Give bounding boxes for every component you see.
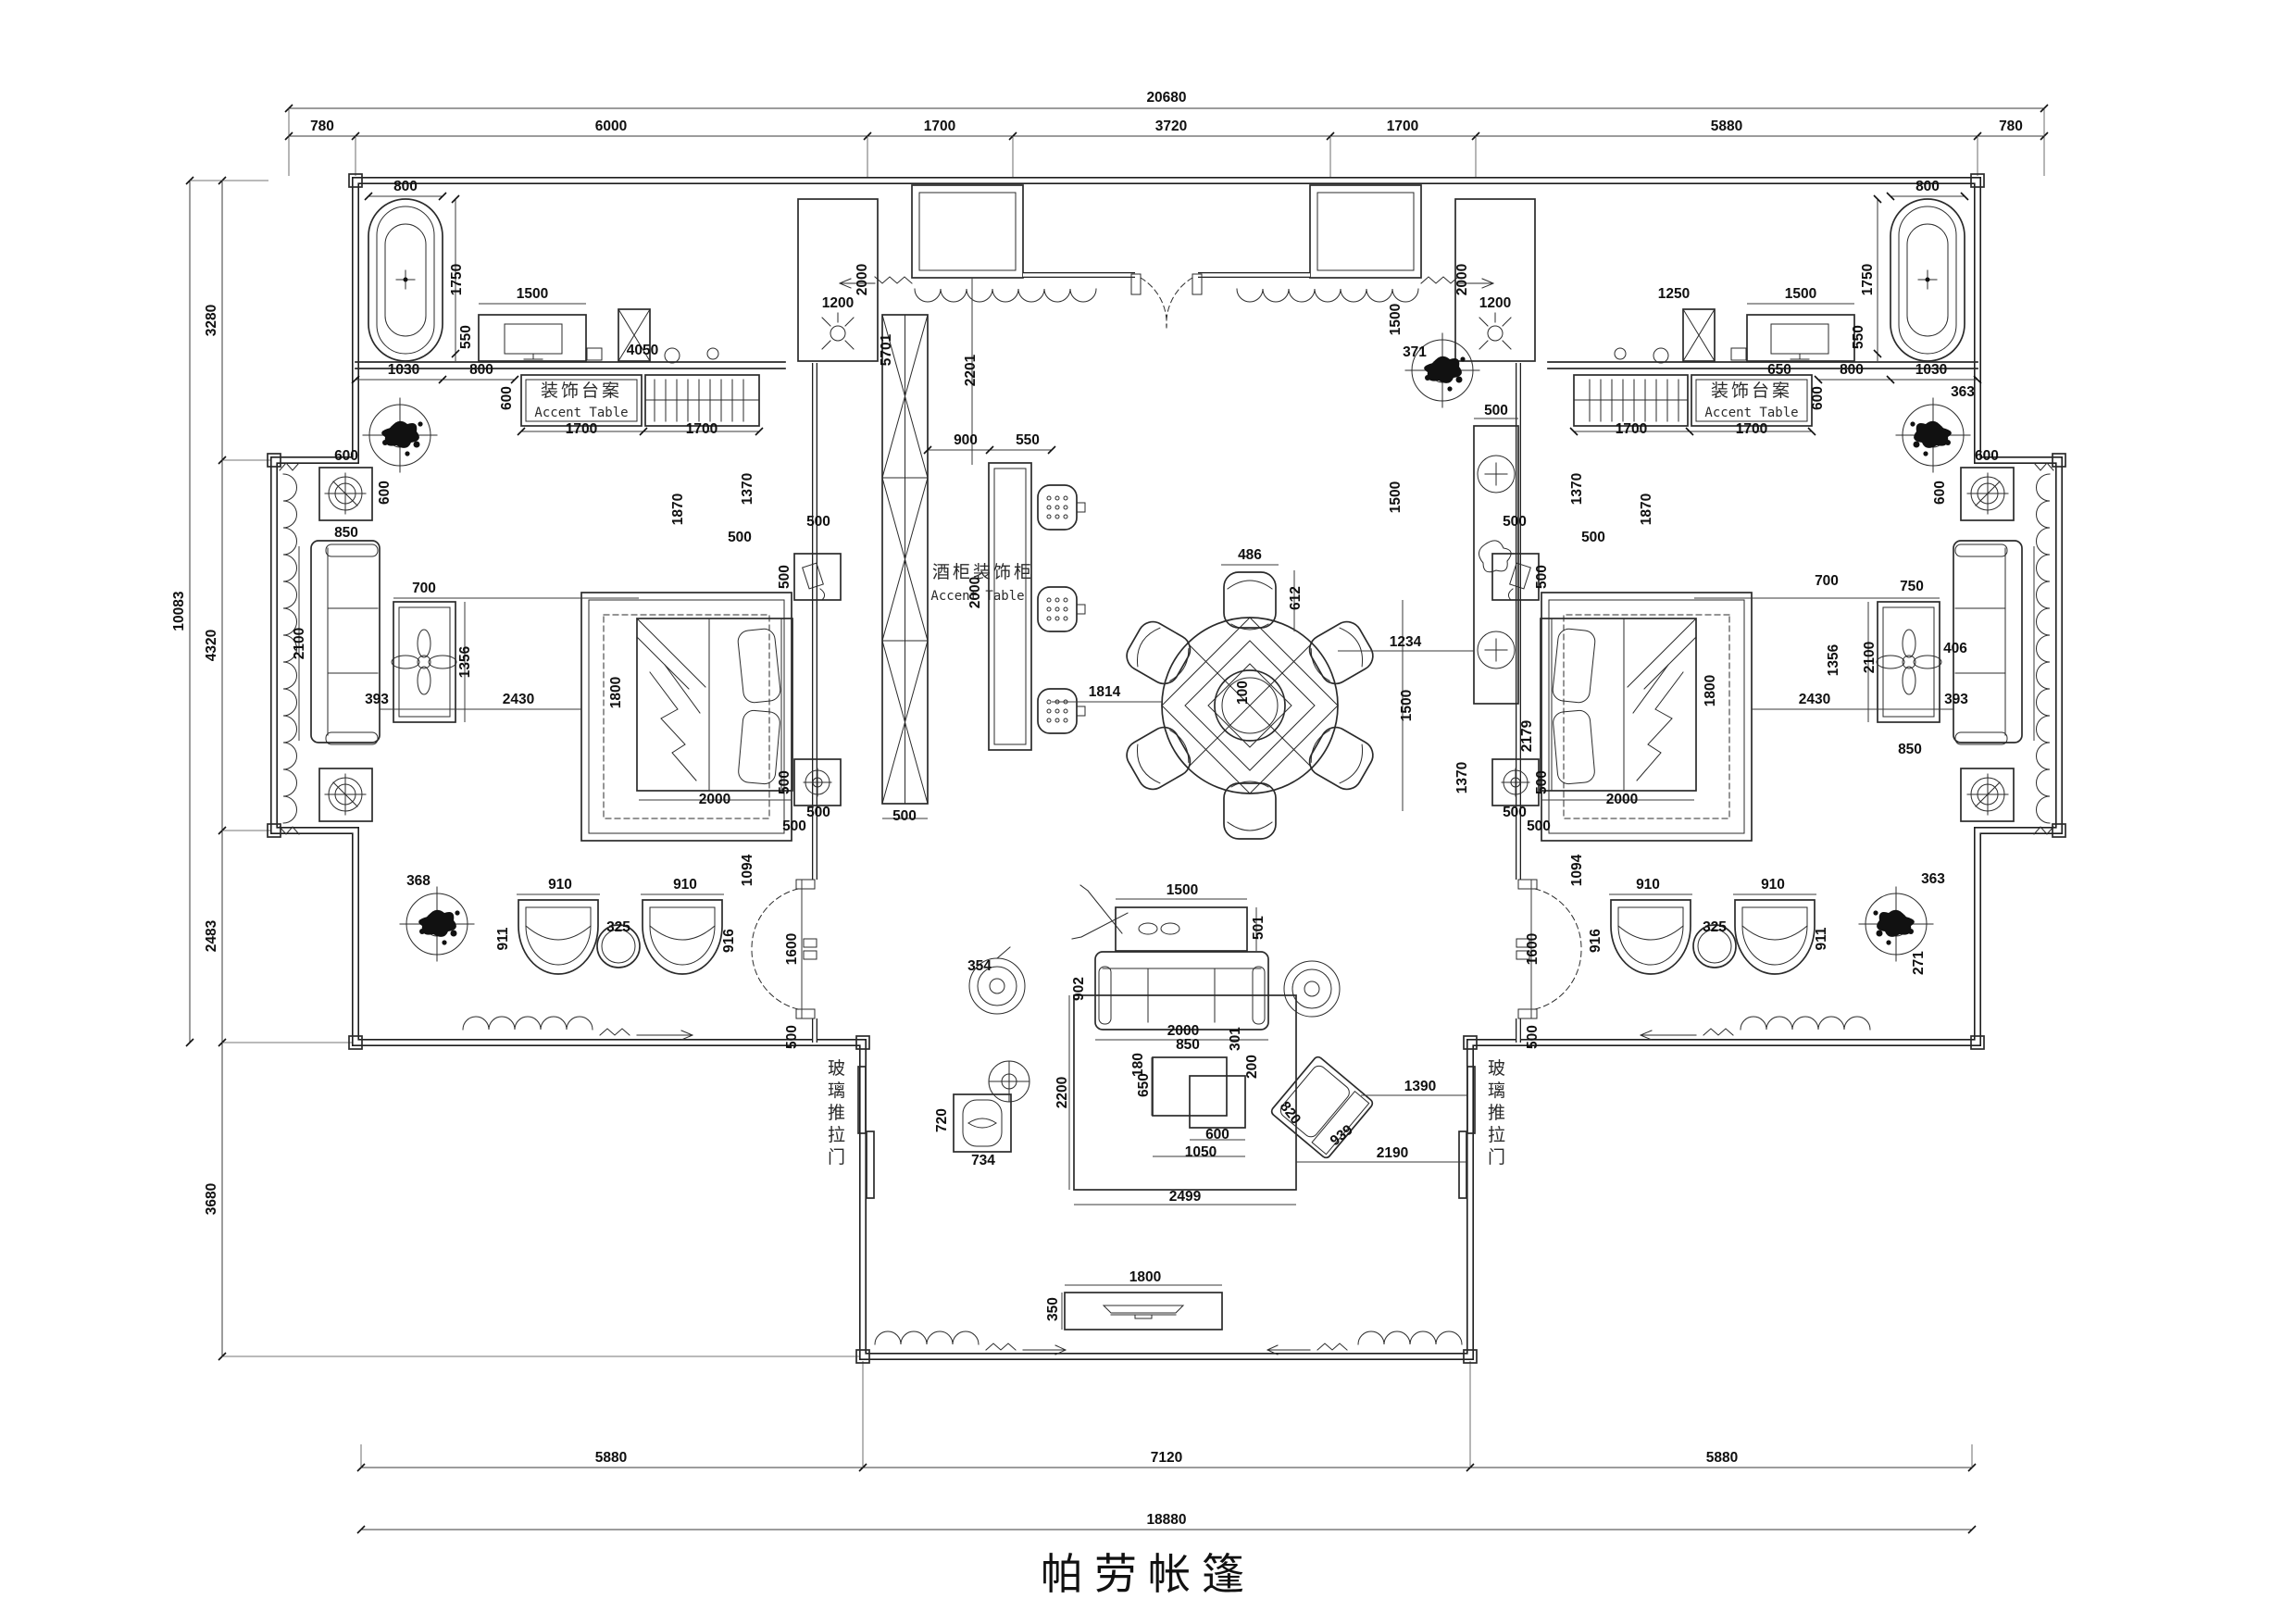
dim-label: 5880 bbox=[1706, 1450, 1738, 1466]
dim-label: 700 bbox=[412, 581, 436, 596]
dim-label: 500 bbox=[777, 565, 792, 589]
dim-label: 玻璃推拉门 bbox=[828, 1058, 848, 1168]
dim-label: 325 bbox=[606, 919, 630, 935]
dim-label: 2000 bbox=[699, 792, 730, 807]
dim-label: 200 bbox=[1244, 1055, 1260, 1079]
dim-label: 612 bbox=[1288, 586, 1304, 610]
dim-label: 910 bbox=[1761, 877, 1785, 893]
dim-label: 600 bbox=[1932, 481, 1948, 505]
dim-label: 3720 bbox=[1155, 119, 1187, 134]
dim-label: 2000 bbox=[967, 577, 983, 608]
dim-label: 2000 bbox=[1606, 792, 1638, 807]
dim-label: 368 bbox=[406, 873, 430, 889]
dim-label: 720 bbox=[934, 1108, 950, 1132]
dim-label: 325 bbox=[1703, 919, 1727, 935]
dim-label: 700 bbox=[1815, 573, 1839, 589]
dim-label: 780 bbox=[310, 119, 334, 134]
dim-label: 5880 bbox=[595, 1450, 627, 1466]
dim-label: 1500 bbox=[1388, 304, 1404, 335]
dim-label: 1600 bbox=[784, 933, 800, 965]
dim-label: 850 bbox=[1176, 1037, 1200, 1053]
dim-label: 7120 bbox=[1151, 1450, 1182, 1466]
dim-label: 500 bbox=[1534, 770, 1550, 794]
dim-label: 363 bbox=[1951, 384, 1975, 400]
dim-label: 18880 bbox=[1146, 1512, 1186, 1528]
dim-label: 2100 bbox=[292, 628, 307, 659]
dim-label: 301 bbox=[1228, 1027, 1243, 1051]
dim-label: 1700 bbox=[1616, 421, 1647, 437]
dim-label: 1500 bbox=[1167, 882, 1198, 898]
dim-label: 2483 bbox=[204, 919, 219, 952]
dim-label: 406 bbox=[1943, 641, 1967, 656]
dim-label: 902 bbox=[1071, 977, 1087, 1001]
dim-label: 20680 bbox=[1146, 90, 1186, 106]
dim-label: 500 bbox=[728, 530, 752, 545]
dim-label: 2000 bbox=[855, 264, 870, 295]
dim-label: 393 bbox=[365, 692, 389, 707]
dim-label: 600 bbox=[499, 386, 515, 410]
dim-label: 393 bbox=[1944, 692, 1968, 707]
dim-label: 850 bbox=[334, 525, 358, 541]
dim-label: 500 bbox=[784, 1025, 800, 1049]
dim-label: 500 bbox=[1503, 805, 1527, 820]
dim-label: 2201 bbox=[963, 354, 979, 386]
dim-label: 2179 bbox=[1519, 719, 1535, 752]
dim-label: 550 bbox=[1851, 325, 1866, 349]
dim-label: 1700 bbox=[566, 421, 597, 437]
dim-label: 1700 bbox=[1387, 119, 1418, 134]
dim-label: 5880 bbox=[1711, 119, 1742, 134]
dim-label: 1800 bbox=[608, 677, 624, 708]
dim-label: 550 bbox=[458, 325, 474, 349]
dim-label: 486 bbox=[1238, 547, 1262, 563]
dim-label: 3280 bbox=[204, 305, 219, 336]
dim-label: 3680 bbox=[204, 1183, 219, 1215]
dim-label: 1094 bbox=[740, 854, 755, 886]
dim-label: 1370 bbox=[740, 473, 755, 505]
dim-label: 800 bbox=[469, 362, 493, 378]
dim-label: 4320 bbox=[204, 630, 219, 661]
dim-label: 363 bbox=[1921, 871, 1945, 887]
dim-label: 2430 bbox=[1799, 692, 1830, 707]
dim-label: 100 bbox=[1235, 681, 1251, 705]
dim-label: 500 bbox=[1534, 565, 1550, 589]
dim-label: 1700 bbox=[1736, 421, 1767, 437]
dim-label: 1250 bbox=[1658, 286, 1690, 302]
dim-label: 1700 bbox=[686, 421, 717, 437]
dim-label: 550 bbox=[1016, 432, 1040, 448]
dim-label: 1356 bbox=[1826, 643, 1841, 676]
dim-label: 1390 bbox=[1404, 1079, 1436, 1094]
dim-label: 911 bbox=[495, 927, 511, 950]
dim-label: 500 bbox=[1525, 1025, 1541, 1049]
dim-label: 910 bbox=[1636, 877, 1660, 893]
dim-label: 500 bbox=[1581, 530, 1605, 545]
dim-label: 850 bbox=[1898, 742, 1922, 757]
dim-label: 1030 bbox=[388, 362, 419, 378]
dim-label: 2499 bbox=[1169, 1189, 1202, 1205]
dim-label: 354 bbox=[967, 958, 992, 974]
dim-label: 1800 bbox=[1129, 1269, 1161, 1285]
dim-label: 271 bbox=[1911, 951, 1927, 975]
paper-background bbox=[0, 0, 2296, 1624]
dim-label: 1200 bbox=[1479, 295, 1511, 311]
dim-label: 650 bbox=[1136, 1073, 1152, 1097]
dim-label: 6000 bbox=[595, 119, 627, 134]
dim-label: 1870 bbox=[1639, 493, 1654, 525]
dim-label: 2000 bbox=[1454, 264, 1470, 295]
dim-label: 玻璃推拉门 bbox=[1488, 1058, 1508, 1168]
dim-label: 500 bbox=[1503, 514, 1527, 530]
accent-table-label-cn: 装饰台案 bbox=[541, 381, 622, 401]
dim-label: 500 bbox=[777, 770, 792, 794]
dim-label: 1870 bbox=[670, 493, 686, 525]
dim-label: 800 bbox=[393, 179, 418, 194]
dim-label: 1050 bbox=[1185, 1144, 1217, 1160]
dim-label: 600 bbox=[1810, 386, 1826, 410]
dim-label: 910 bbox=[673, 877, 697, 893]
dim-label: 600 bbox=[1205, 1127, 1229, 1143]
dim-label: 1500 bbox=[1785, 286, 1816, 302]
accent-table-label-en: Accent Table bbox=[534, 406, 628, 420]
dim-label: 500 bbox=[1527, 818, 1551, 834]
floorplan-page: 装饰台案 Accent Table 装饰台案 Accent Table 酒柜装饰… bbox=[0, 0, 2296, 1624]
dim-label: 916 bbox=[1588, 929, 1603, 953]
dim-label: 350 bbox=[1045, 1297, 1061, 1321]
dim-label: 1500 bbox=[517, 286, 548, 302]
dim-label: 1030 bbox=[1915, 362, 1947, 378]
dim-label: 1356 bbox=[457, 645, 473, 678]
dim-label: 600 bbox=[1975, 448, 1999, 464]
dim-label: 2200 bbox=[1054, 1077, 1070, 1108]
dim-label: 1500 bbox=[1388, 481, 1404, 513]
dim-label: 500 bbox=[782, 818, 806, 834]
dim-label: 501 bbox=[1251, 916, 1267, 940]
dim-label: 600 bbox=[377, 481, 393, 505]
drawing-title: 帕劳帐篷 bbox=[1041, 1549, 1255, 1599]
dim-label: 2430 bbox=[503, 692, 534, 707]
dim-label: 1094 bbox=[1569, 854, 1585, 886]
dim-label: 1750 bbox=[1860, 264, 1876, 295]
dim-label: 600 bbox=[334, 448, 358, 464]
dim-label: 900 bbox=[954, 432, 978, 448]
dim-label: 1234 bbox=[1390, 634, 1422, 650]
dim-label: 910 bbox=[548, 877, 572, 893]
dim-label: 1370 bbox=[1569, 473, 1585, 505]
accent-table-label-en: Accent Table bbox=[1704, 406, 1798, 420]
dim-label: 2100 bbox=[1862, 642, 1878, 673]
dim-label: 650 bbox=[1767, 362, 1791, 378]
dim-label: 1370 bbox=[1454, 762, 1470, 793]
dim-label: 1750 bbox=[449, 264, 465, 295]
dim-label: 4050 bbox=[627, 343, 658, 358]
dim-label: 916 bbox=[721, 929, 737, 953]
dim-label: 911 bbox=[1814, 927, 1829, 950]
dim-label: 180 bbox=[1130, 1053, 1146, 1077]
dim-label: 2190 bbox=[1377, 1145, 1408, 1161]
dim-label: 500 bbox=[806, 805, 830, 820]
dim-label: 780 bbox=[1999, 119, 2023, 134]
dim-label: 371 bbox=[1403, 344, 1427, 360]
dim-label: 1200 bbox=[822, 295, 854, 311]
dim-label: 500 bbox=[806, 514, 830, 530]
dim-label: 1700 bbox=[924, 119, 955, 134]
dim-label: 500 bbox=[892, 808, 917, 824]
dim-label: 1800 bbox=[1703, 675, 1718, 706]
dim-label: 800 bbox=[1840, 362, 1864, 378]
dim-label: 800 bbox=[1915, 179, 1940, 194]
dim-label: 1600 bbox=[1525, 933, 1541, 965]
dim-label: 1500 bbox=[1399, 690, 1415, 721]
dim-label: 734 bbox=[971, 1153, 995, 1168]
wine-cabinet-label-cn: 酒柜装饰柜 bbox=[932, 562, 1034, 582]
dim-label: 10083 bbox=[171, 591, 187, 631]
dim-label: 750 bbox=[1900, 579, 1924, 594]
dim-label: 500 bbox=[1484, 403, 1508, 418]
dim-label: 1814 bbox=[1089, 684, 1121, 700]
accent-table-label-cn: 装饰台案 bbox=[1711, 381, 1792, 401]
dim-label: 5701 bbox=[879, 333, 894, 366]
